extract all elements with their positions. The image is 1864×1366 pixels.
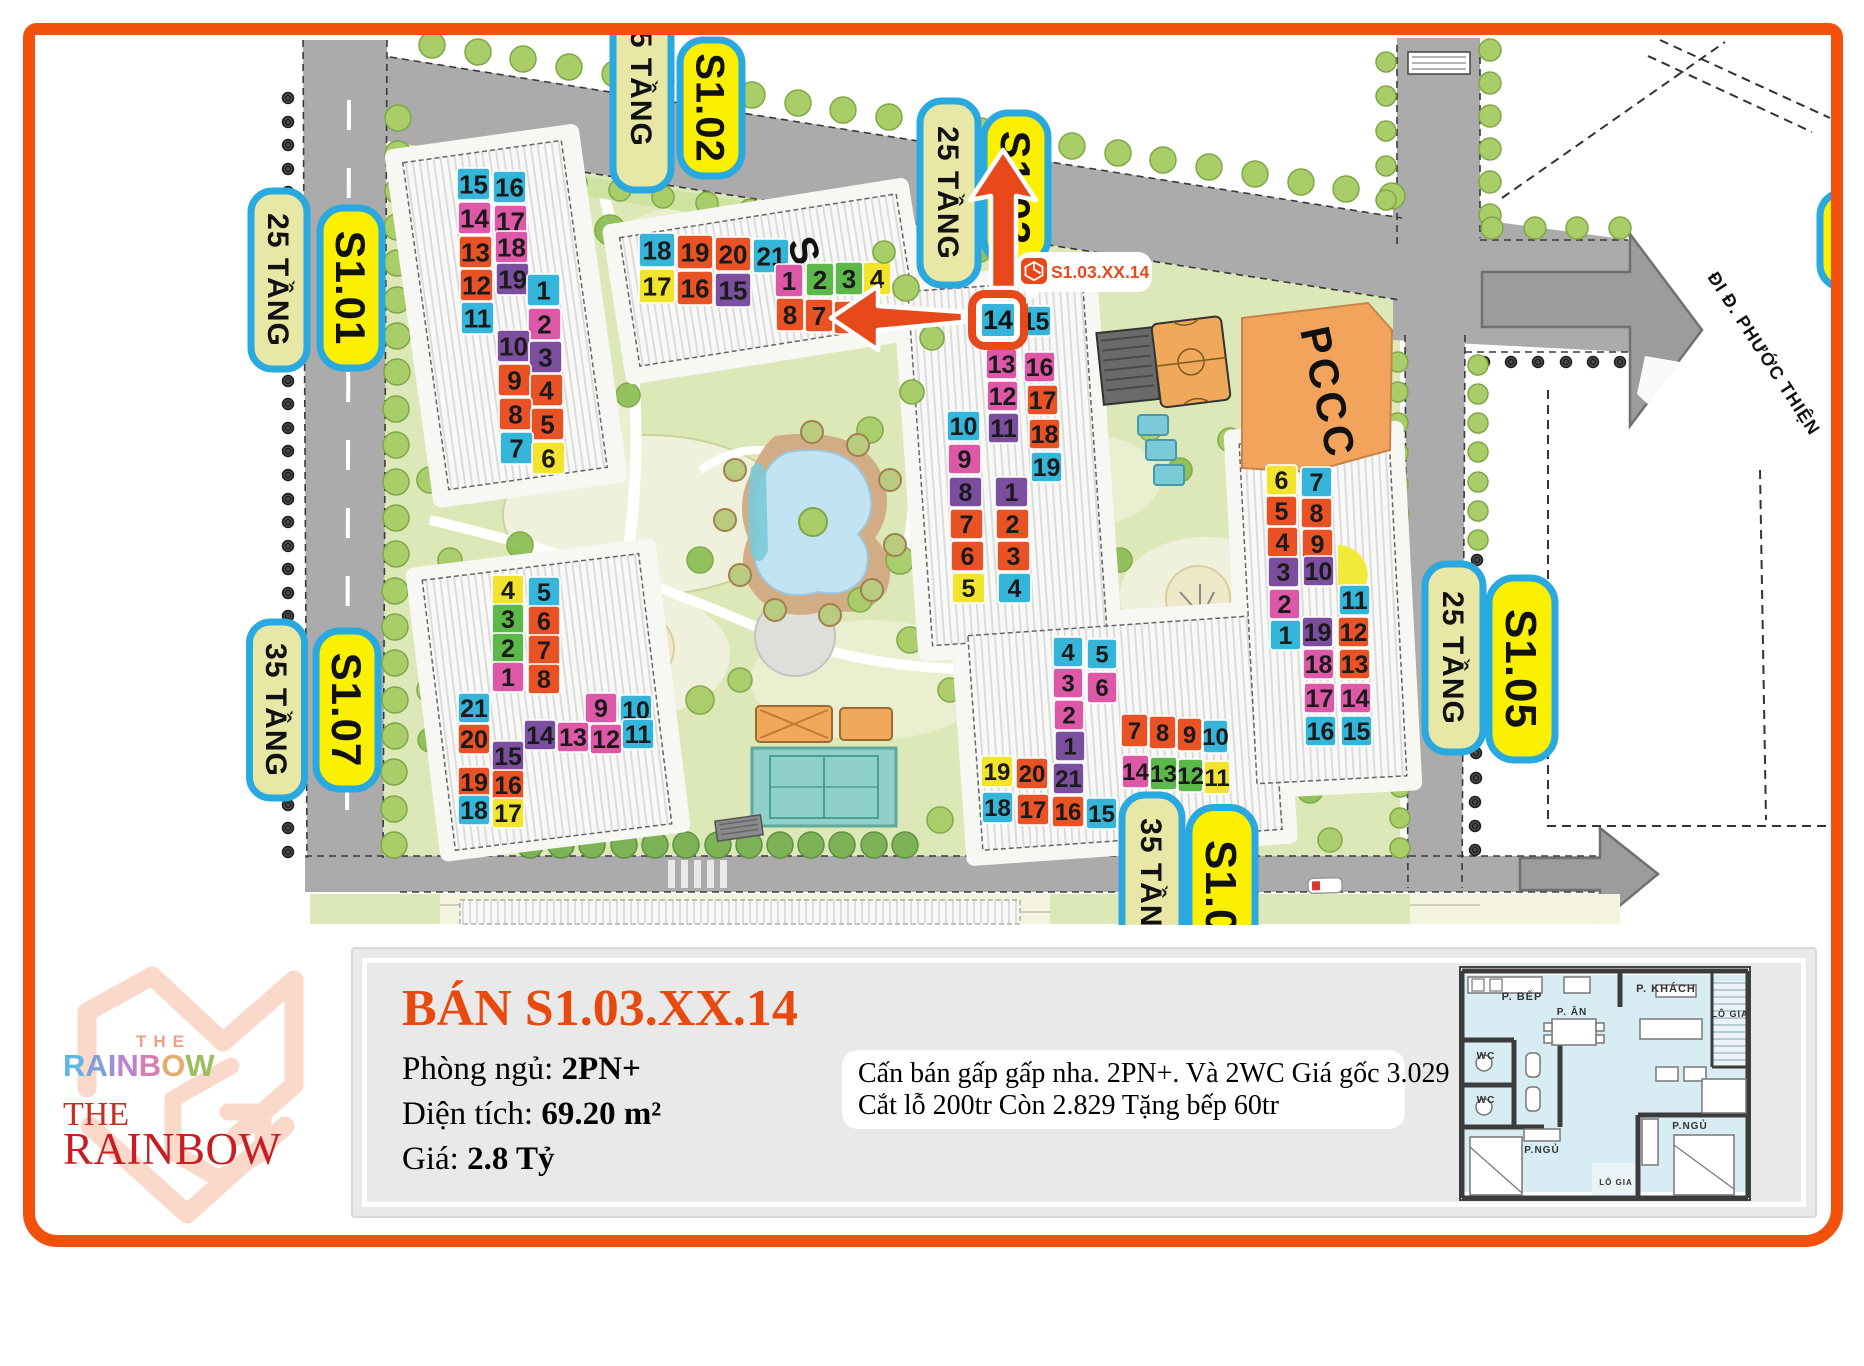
svg-text:18: 18 (1305, 651, 1333, 679)
svg-text:16: 16 (681, 273, 710, 303)
svg-text:18: 18 (643, 235, 672, 265)
svg-text:19: 19 (1304, 619, 1332, 647)
svg-text:15: 15 (1343, 718, 1371, 746)
svg-text:3: 3 (1277, 559, 1291, 587)
svg-text:RAINBOW: RAINBOW (63, 1124, 282, 1174)
svg-text:19: 19 (1033, 454, 1061, 482)
svg-text:S1.06: S1.06 (1196, 840, 1245, 925)
svg-text:1: 1 (782, 266, 796, 296)
svg-text:1: 1 (1279, 622, 1293, 650)
svg-text:21: 21 (1055, 766, 1082, 793)
svg-text:13: 13 (988, 351, 1016, 379)
svg-text:S1.05: S1.05 (1496, 609, 1545, 729)
svg-text:14: 14 (1342, 685, 1370, 713)
svg-text:19: 19 (984, 759, 1011, 786)
svg-text:8: 8 (783, 300, 797, 330)
svg-text:19: 19 (681, 237, 710, 267)
svg-text:LÔ GIA: LÔ GIA (1712, 1008, 1749, 1019)
svg-text:17: 17 (1020, 797, 1047, 824)
svg-text:1: 1 (1005, 479, 1019, 507)
svg-text:18: 18 (1031, 421, 1059, 449)
svg-text:20: 20 (1019, 761, 1046, 788)
svg-text:4: 4 (1061, 640, 1075, 667)
svg-text:15: 15 (1088, 801, 1115, 828)
svg-text:12: 12 (989, 383, 1017, 411)
svg-text:7: 7 (1128, 718, 1141, 745)
svg-text:3: 3 (842, 264, 856, 294)
svg-text:P. ĂN: P. ĂN (1557, 1005, 1587, 1018)
svg-text:7: 7 (812, 301, 826, 331)
svg-text:2: 2 (1278, 591, 1292, 619)
svg-text:WC: WC (1477, 1095, 1496, 1106)
svg-text:35 TẦNG: 35 TẦNG (1134, 818, 1168, 925)
svg-text:15: 15 (719, 275, 748, 305)
svg-text:9: 9 (1311, 531, 1325, 559)
svg-text:RAINBOW: RAINBOW (63, 1048, 215, 1083)
svg-text:3: 3 (1007, 543, 1021, 571)
svg-text:5: 5 (962, 575, 976, 603)
svg-text:6: 6 (1275, 467, 1289, 495)
svg-text:18: 18 (984, 795, 1011, 822)
svg-text:4: 4 (1008, 575, 1022, 603)
svg-text:12: 12 (1177, 763, 1204, 790)
svg-text:4: 4 (1276, 529, 1290, 557)
svg-text:11: 11 (1204, 765, 1229, 792)
svg-text:14: 14 (1122, 759, 1149, 786)
svg-text:13: 13 (1341, 651, 1369, 679)
svg-text:7: 7 (1310, 469, 1324, 497)
svg-text:17: 17 (1029, 387, 1057, 415)
svg-text:2: 2 (1062, 703, 1075, 730)
svg-text:5: 5 (1095, 642, 1108, 669)
svg-text:2: 2 (1006, 511, 1020, 539)
svg-text:9: 9 (1183, 722, 1196, 749)
svg-text:10: 10 (1202, 724, 1229, 751)
svg-text:20: 20 (719, 239, 748, 269)
svg-text:25 TẦNG: 25 TẦNG (1436, 591, 1470, 725)
svg-text:2: 2 (813, 265, 827, 295)
svg-text:11: 11 (625, 721, 652, 749)
svg-text:S1.02: S1.02 (688, 53, 732, 163)
svg-text:7: 7 (960, 511, 974, 539)
svg-text:25 TẦNG: 25 TẦNG (624, 35, 658, 147)
svg-text:P. KHÁCH: P. KHÁCH (1636, 982, 1696, 995)
svg-text:11: 11 (990, 415, 1017, 443)
svg-text:10: 10 (1305, 558, 1333, 586)
svg-text:LÔ GIA: LÔ GIA (1599, 1178, 1633, 1187)
svg-text:10: 10 (950, 413, 978, 441)
svg-text:6: 6 (961, 543, 975, 571)
svg-text:6: 6 (1095, 675, 1108, 702)
svg-text:17: 17 (1306, 685, 1334, 713)
svg-text:12: 12 (1340, 619, 1368, 647)
svg-text:P. BẾP: P. BẾP (1502, 990, 1543, 1003)
svg-text:5: 5 (1275, 498, 1289, 526)
svg-text:16: 16 (1026, 354, 1054, 382)
svg-text:S4: S4 (1828, 215, 1831, 266)
svg-text:14: 14 (983, 305, 1013, 335)
svg-text:16: 16 (1055, 799, 1082, 826)
svg-text:17: 17 (643, 271, 672, 301)
svg-text:WC: WC (1477, 1051, 1496, 1062)
svg-text:1: 1 (1063, 734, 1076, 761)
svg-text:P.NGỦ: P.NGỦ (1524, 1143, 1559, 1156)
svg-text:9: 9 (958, 446, 972, 474)
svg-text:S1.03.XX.14: S1.03.XX.14 (1051, 262, 1150, 282)
svg-text:8: 8 (1156, 720, 1169, 747)
svg-text:8: 8 (959, 479, 973, 507)
svg-text:8: 8 (1310, 500, 1324, 528)
svg-text:P.NGỦ: P.NGỦ (1672, 1119, 1707, 1132)
svg-text:13: 13 (1150, 761, 1177, 788)
svg-text:3: 3 (1061, 671, 1074, 698)
svg-text:16: 16 (1307, 718, 1335, 746)
svg-text:25 TẦNG: 25 TẦNG (931, 126, 965, 260)
svg-text:11: 11 (1341, 587, 1368, 615)
